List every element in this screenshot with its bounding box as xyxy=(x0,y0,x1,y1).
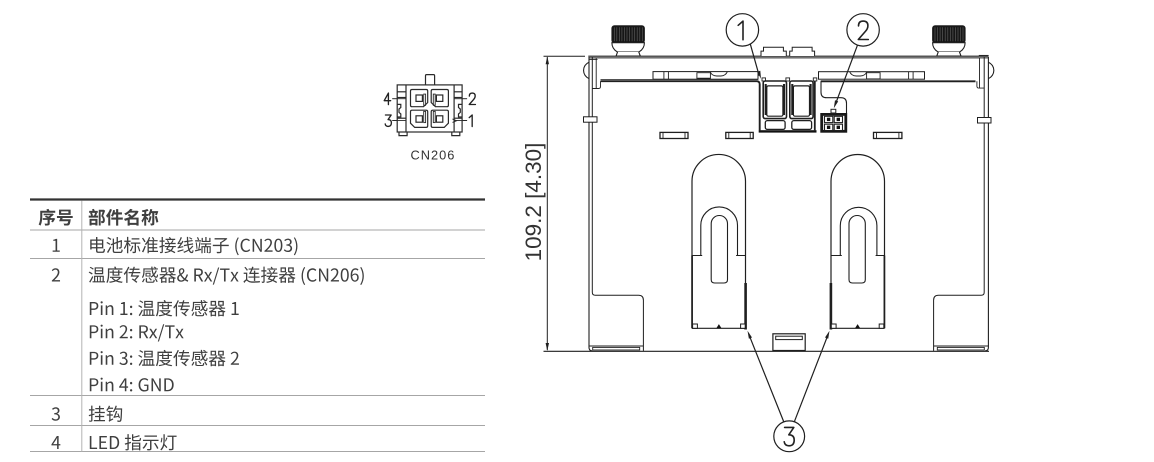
svg-text:CN206: CN206 xyxy=(411,148,456,163)
svg-text:109.2 [4.30]: 109.2 [4.30] xyxy=(521,143,546,262)
